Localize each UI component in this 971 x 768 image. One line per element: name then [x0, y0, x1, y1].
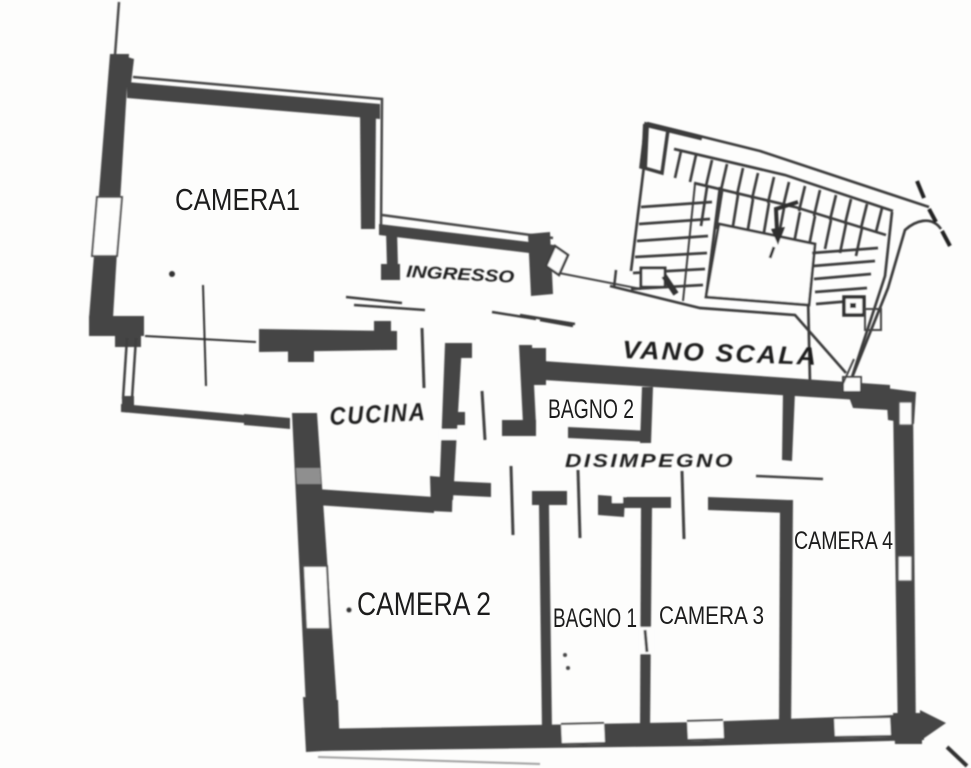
- svg-text:DISIMPEGNO: DISIMPEGNO: [565, 451, 735, 471]
- svg-text:CAMERA1: CAMERA1: [175, 182, 300, 217]
- svg-text:BAGNO 1: BAGNO 1: [553, 603, 637, 633]
- svg-text:CAMERA 2: CAMERA 2: [357, 586, 491, 622]
- svg-text:CAMERA 3: CAMERA 3: [659, 602, 764, 630]
- svg-text:CUCINA: CUCINA: [329, 398, 427, 431]
- svg-text:CAMERA 4: CAMERA 4: [794, 527, 893, 555]
- svg-text:BAGNO 2: BAGNO 2: [548, 394, 634, 424]
